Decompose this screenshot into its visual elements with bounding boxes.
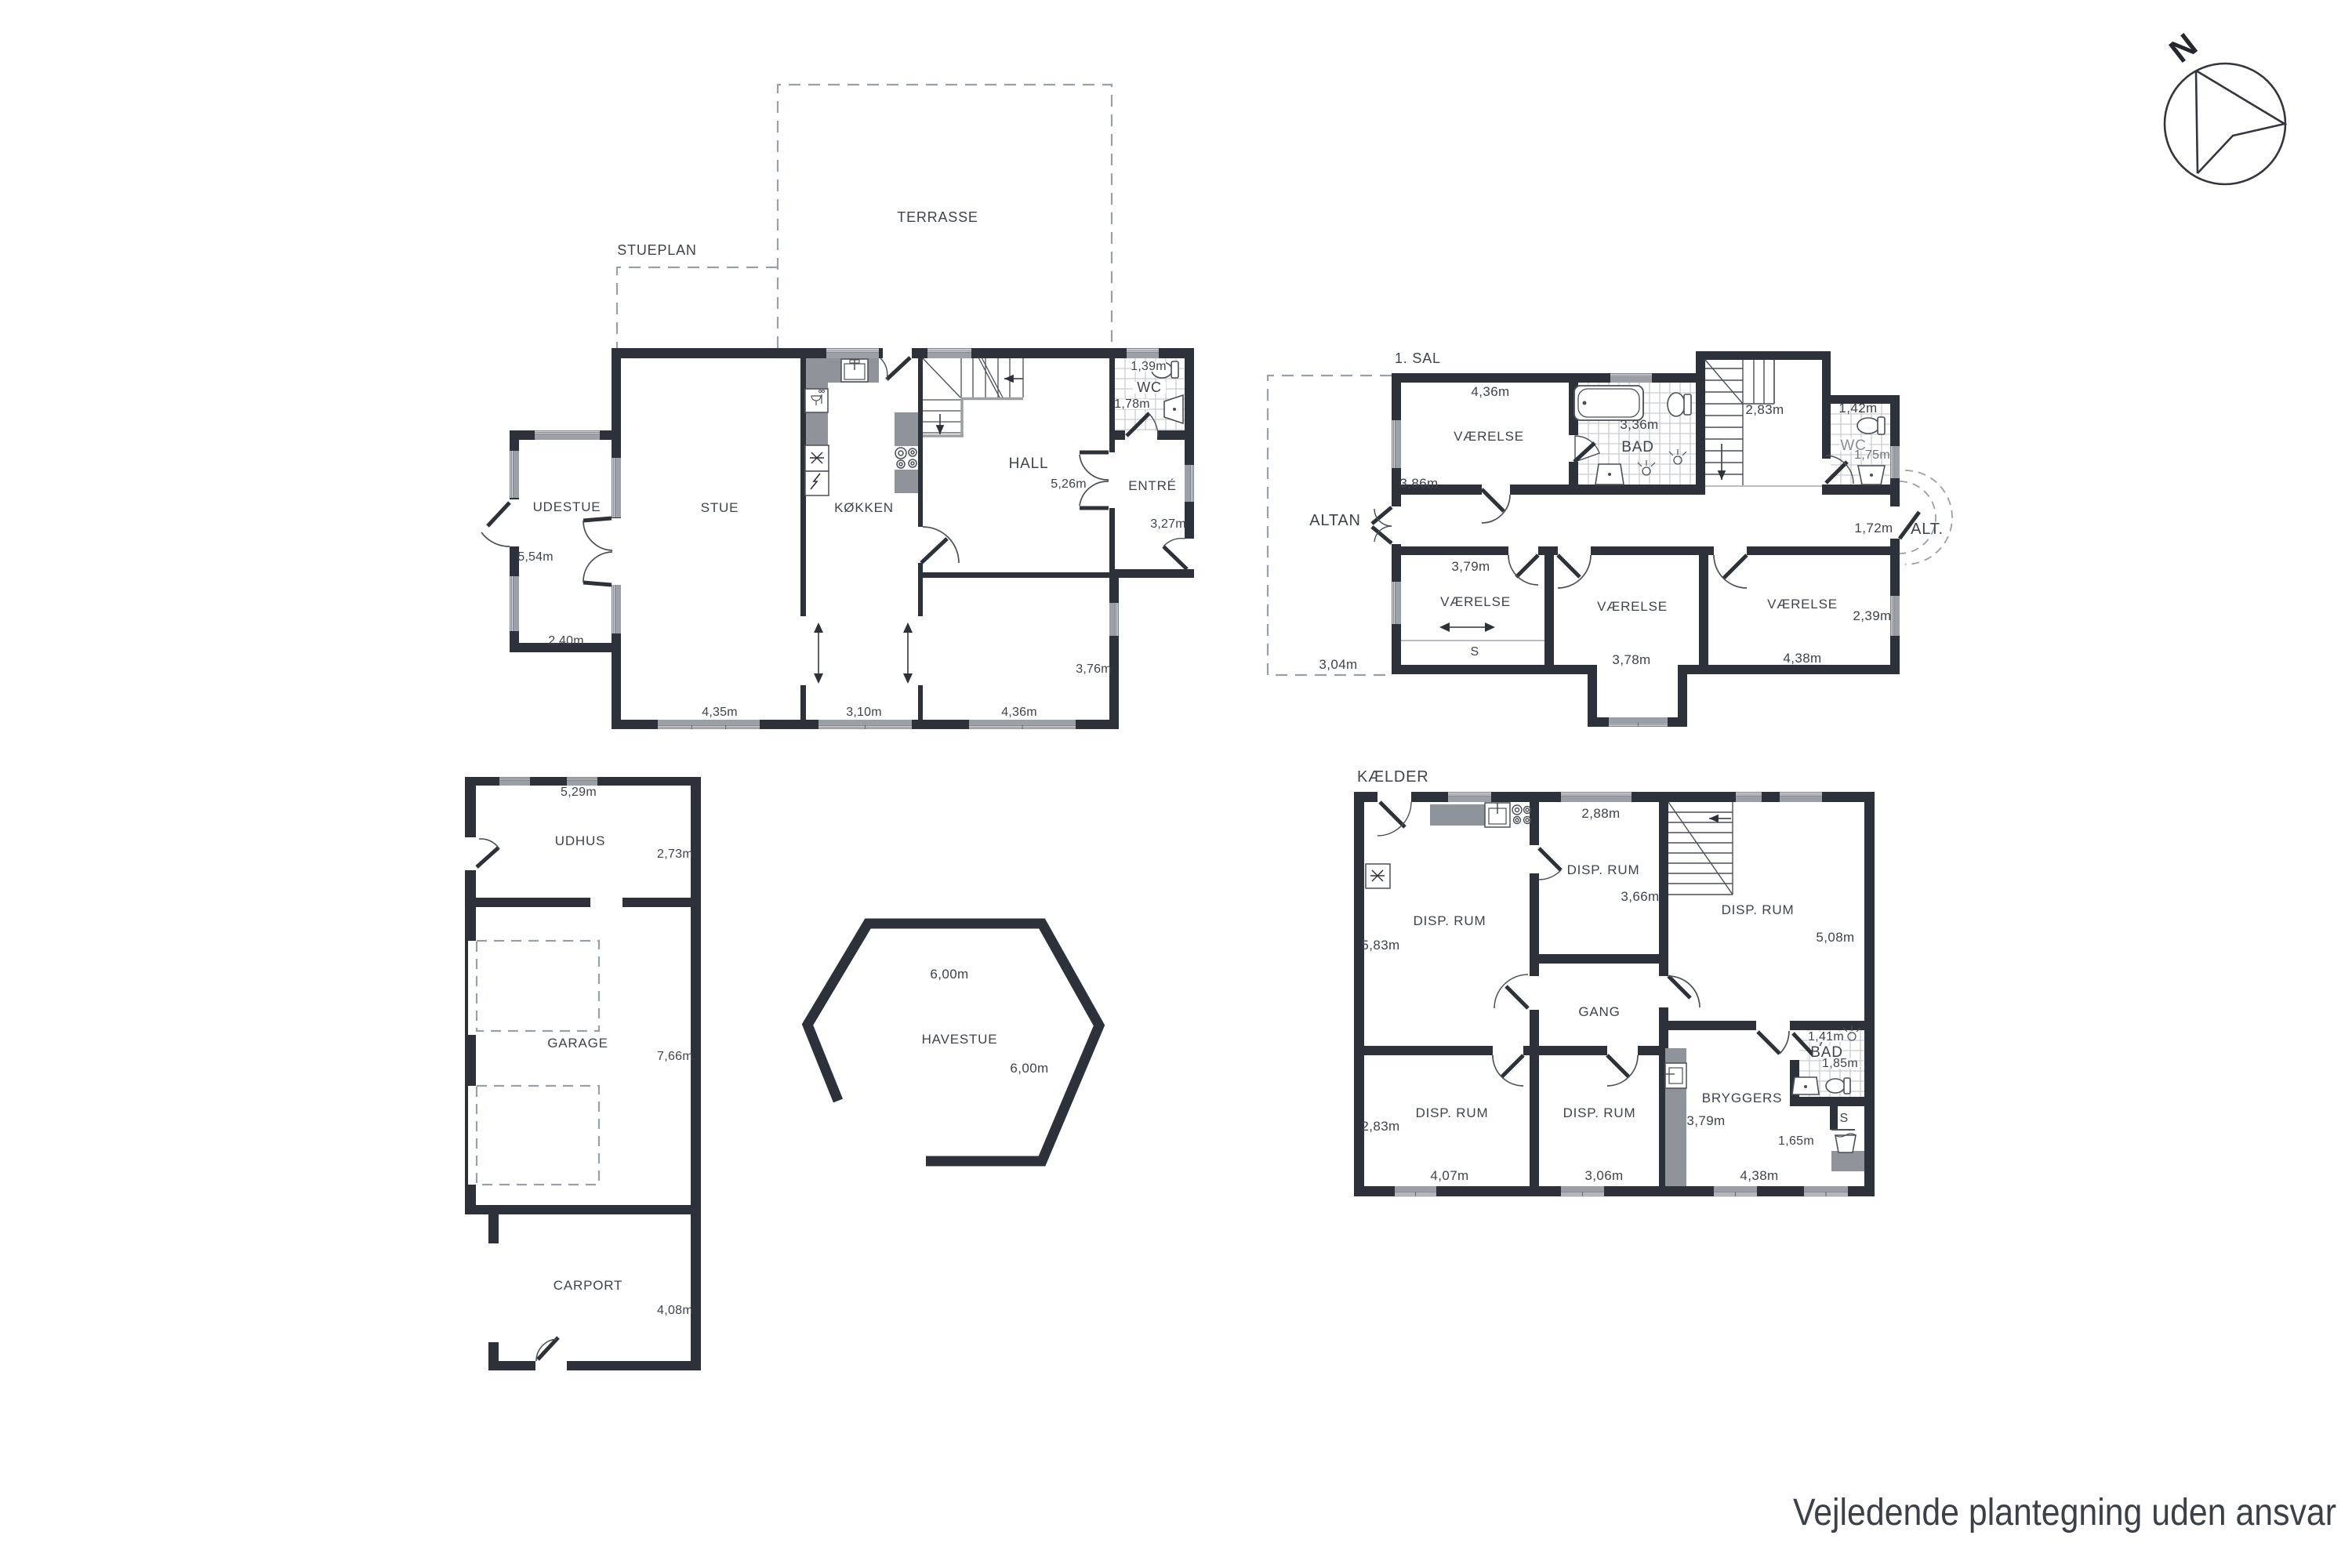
svg-text:VÆRELSE: VÆRELSE <box>1440 594 1511 609</box>
svg-text:ALTAN: ALTAN <box>1309 512 1361 529</box>
svg-text:3,36m: 3,36m <box>1620 417 1658 432</box>
svg-text:4,36m: 4,36m <box>1471 384 1509 399</box>
svg-text:3,06m: 3,06m <box>1584 1168 1623 1183</box>
svg-text:UDHUS: UDHUS <box>555 833 605 848</box>
svg-text:VÆRELSE: VÆRELSE <box>1454 429 1524 444</box>
svg-text:1,85m: 1,85m <box>1822 1057 1858 1070</box>
svg-text:S: S <box>1471 645 1479 659</box>
svg-text:2,88m: 2,88m <box>1581 806 1620 821</box>
svg-text:3,86m: 3,86m <box>1399 476 1438 491</box>
svg-text:CARPORT: CARPORT <box>554 1278 622 1293</box>
svg-text:4,07m: 4,07m <box>1430 1168 1468 1183</box>
svg-text:1. SAL: 1. SAL <box>1395 350 1441 366</box>
svg-text:4,08m: 4,08m <box>657 1304 693 1317</box>
svg-text:6,00m: 6,00m <box>1010 1061 1048 1076</box>
svg-text:GARAGE: GARAGE <box>547 1036 608 1051</box>
svg-text:4,38m: 4,38m <box>1740 1168 1778 1183</box>
svg-text:1,65m: 1,65m <box>1778 1134 1814 1148</box>
svg-text:5,08m: 5,08m <box>1816 930 1854 945</box>
svg-text:2,39m: 2,39m <box>1853 608 1891 623</box>
svg-text:3,04m: 3,04m <box>1319 657 1357 672</box>
svg-text:4,36m: 4,36m <box>1001 706 1036 719</box>
svg-text:GANG: GANG <box>1578 1004 1620 1019</box>
svg-text:1,75m: 1,75m <box>1854 448 1890 462</box>
svg-text:1,41m: 1,41m <box>1808 1030 1844 1044</box>
svg-text:ENTRÉ: ENTRÉ <box>1128 478 1177 493</box>
svg-text:STUEPLAN: STUEPLAN <box>617 242 696 258</box>
svg-text:TERRASSE: TERRASSE <box>897 209 978 225</box>
svg-text:4,38m: 4,38m <box>1783 651 1821 666</box>
svg-text:ALT.: ALT. <box>1911 521 1944 538</box>
svg-text:BRYGGERS: BRYGGERS <box>1702 1091 1782 1105</box>
svg-text:1,39m: 1,39m <box>1131 360 1166 373</box>
svg-text:VÆRELSE: VÆRELSE <box>1767 597 1838 612</box>
svg-text:2,73m: 2,73m <box>657 848 693 861</box>
svg-text:KØKKEN: KØKKEN <box>834 500 894 515</box>
svg-text:Vejledende plantegning uden an: Vejledende plantegning uden ansvar <box>1793 1492 2336 1534</box>
svg-text:2,83m: 2,83m <box>1361 1119 1399 1134</box>
svg-text:3,78m: 3,78m <box>1612 652 1650 667</box>
svg-text:1,42m: 1,42m <box>1838 401 1877 416</box>
svg-text:HAVESTUE: HAVESTUE <box>922 1032 998 1047</box>
svg-text:5,26m: 5,26m <box>1051 477 1086 491</box>
svg-text:DISP. RUM: DISP. RUM <box>1416 1105 1489 1120</box>
svg-text:DISP. RUM: DISP. RUM <box>1414 913 1486 928</box>
svg-text:HALL: HALL <box>1009 456 1049 472</box>
svg-text:4,35m: 4,35m <box>702 706 737 719</box>
svg-text:KÆLDER: KÆLDER <box>1357 768 1429 786</box>
svg-text:2,83m: 2,83m <box>1745 402 1784 417</box>
svg-text:DISP. RUM: DISP. RUM <box>1563 1105 1636 1120</box>
svg-text:DISP. RUM: DISP. RUM <box>1722 902 1795 917</box>
svg-text:3,79m: 3,79m <box>1451 559 1490 574</box>
svg-text:3,66m: 3,66m <box>1621 889 1659 904</box>
svg-text:5,29m: 5,29m <box>561 786 597 799</box>
svg-text:1,78m: 1,78m <box>1114 397 1149 411</box>
svg-text:2,40m: 2,40m <box>548 634 583 648</box>
svg-text:5,83m: 5,83m <box>1361 938 1399 953</box>
svg-text:STUE: STUE <box>701 500 739 515</box>
svg-text:VÆRELSE: VÆRELSE <box>1597 599 1668 614</box>
svg-text:3,79m: 3,79m <box>1686 1113 1725 1128</box>
svg-text:UDESTUE: UDESTUE <box>533 499 601 514</box>
svg-text:5,54m: 5,54m <box>517 550 553 564</box>
svg-text:DISP. RUM: DISP. RUM <box>1567 862 1640 877</box>
svg-text:3,76m: 3,76m <box>1076 662 1111 676</box>
svg-text:1,72m: 1,72m <box>1854 521 1893 535</box>
svg-text:S: S <box>1840 1112 1849 1125</box>
svg-text:3,27m: 3,27m <box>1150 517 1185 531</box>
svg-text:WC: WC <box>1137 379 1162 395</box>
svg-text:7,66m: 7,66m <box>657 1050 693 1063</box>
svg-text:3,10m: 3,10m <box>846 706 881 719</box>
svg-text:BAD: BAD <box>1621 439 1653 456</box>
svg-text:6,00m: 6,00m <box>930 967 968 982</box>
